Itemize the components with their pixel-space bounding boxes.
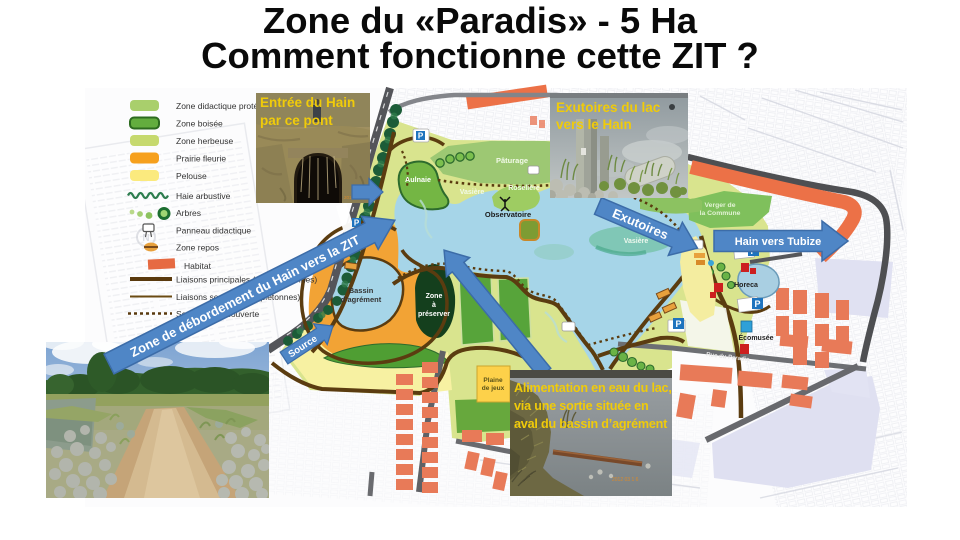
- svg-text:Panneau didactique: Panneau didactique: [176, 226, 251, 236]
- svg-text:Pâturage: Pâturage: [496, 156, 528, 165]
- svg-text:préserver: préserver: [418, 311, 450, 318]
- svg-text:Exutoires du lac: Exutoires du lac: [556, 100, 661, 115]
- svg-text:Observatoire: Observatoire: [485, 210, 531, 219]
- svg-text:Roselière: Roselière: [508, 185, 540, 192]
- svg-text:Alimentation en eau du lac,: Alimentation en eau du lac,: [514, 381, 672, 395]
- svg-text:Prairie fleurie: Prairie fleurie: [176, 154, 226, 164]
- svg-text:Vasière: Vasière: [624, 238, 649, 245]
- svg-text:Zone repos: Zone repos: [176, 243, 219, 253]
- svg-text:par ce pont: par ce pont: [260, 113, 333, 128]
- svg-text:Plaine: Plaine: [483, 377, 503, 384]
- svg-text:Entrée du Hain: Entrée du Hain: [260, 95, 355, 110]
- svg-text:Bassin: Bassin: [349, 286, 374, 295]
- svg-text:P: P: [754, 299, 760, 309]
- svg-text:d’agrément: d’agrément: [341, 295, 382, 304]
- svg-text:Zone boisée: Zone boisée: [176, 119, 223, 129]
- svg-text:Zone herbeuse: Zone herbeuse: [176, 136, 233, 146]
- svg-text:aval du bassin d’agrément: aval du bassin d’agrément: [514, 417, 668, 431]
- svg-text:Écomusée: Écomusée: [738, 333, 773, 342]
- svg-text:P: P: [418, 132, 424, 141]
- svg-text:vers le Hain: vers le Hain: [556, 117, 632, 132]
- svg-text:via une sortie située en: via une sortie située en: [514, 399, 648, 413]
- svg-text:Habitat: Habitat: [184, 261, 212, 271]
- svg-text:Pelouse: Pelouse: [176, 171, 207, 181]
- svg-text:P: P: [675, 319, 681, 329]
- svg-text:Hain vers Tubize: Hain vers Tubize: [735, 236, 822, 248]
- svg-text:Verger de: Verger de: [705, 202, 736, 209]
- svg-text:Haie arbustive: Haie arbustive: [176, 191, 231, 201]
- svg-text:à: à: [432, 302, 436, 309]
- svg-text:la Commune: la Commune: [700, 210, 741, 217]
- svg-text:Aulnaie: Aulnaie: [405, 175, 431, 184]
- svg-text:Horeca: Horeca: [734, 282, 758, 289]
- svg-text:2012 03 1 6: 2012 03 1 6: [612, 477, 639, 483]
- svg-text:de jeux: de jeux: [482, 385, 505, 392]
- svg-text:Zone: Zone: [426, 293, 443, 300]
- svg-text:Arbres: Arbres: [176, 208, 201, 218]
- svg-text:Vasière: Vasière: [460, 189, 485, 196]
